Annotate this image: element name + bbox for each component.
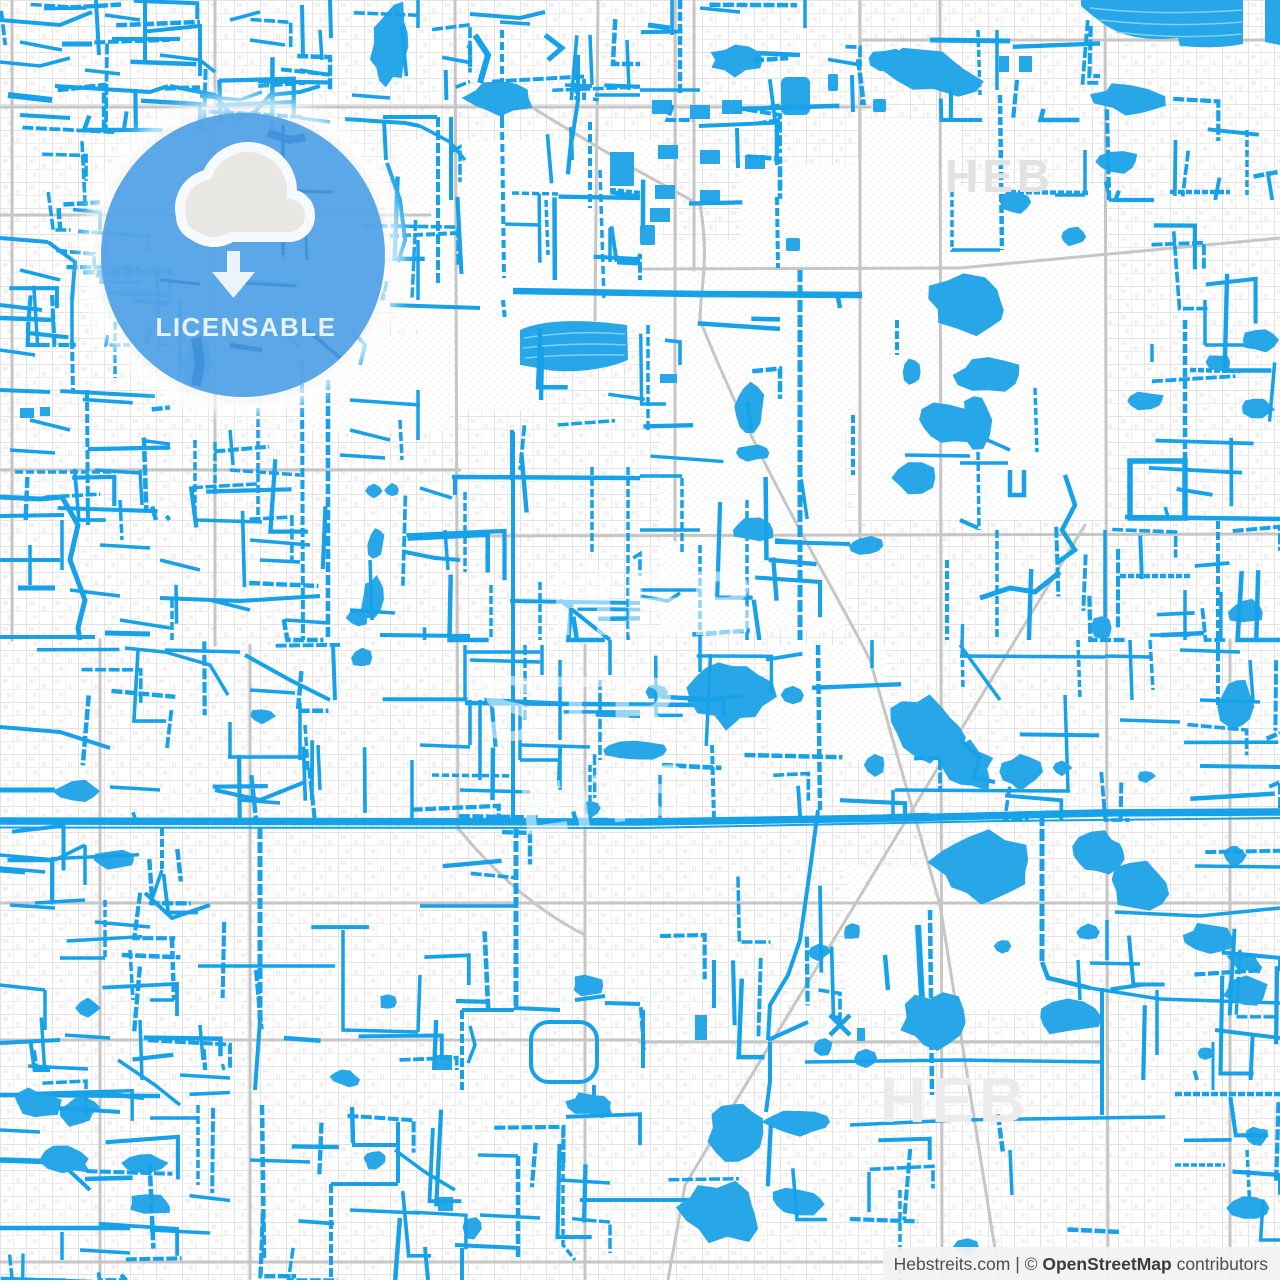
svg-text:LICENSABLE: LICENSABLE bbox=[155, 312, 336, 342]
svg-text:STR: STR bbox=[480, 658, 682, 760]
svg-text:HEB: HEB bbox=[880, 1064, 1030, 1136]
svg-text:HEB: HEB bbox=[945, 150, 1054, 202]
svg-text:HEB: HEB bbox=[550, 553, 762, 655]
svg-text:Hebstreits.com | © OpenStreetM: Hebstreits.com | © OpenStreetMap contrib… bbox=[894, 1254, 1269, 1274]
